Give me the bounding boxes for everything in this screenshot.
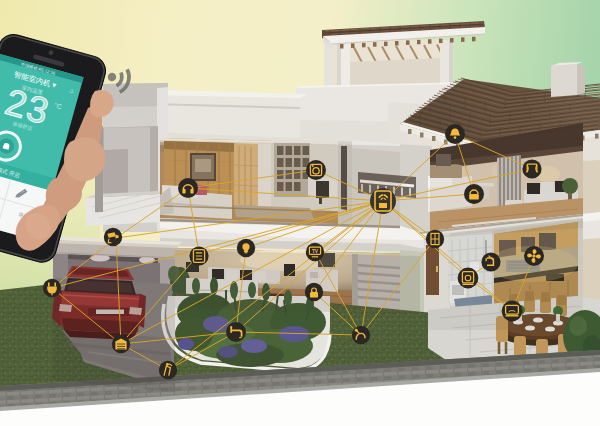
svg-text:TV: TV bbox=[312, 249, 319, 254]
